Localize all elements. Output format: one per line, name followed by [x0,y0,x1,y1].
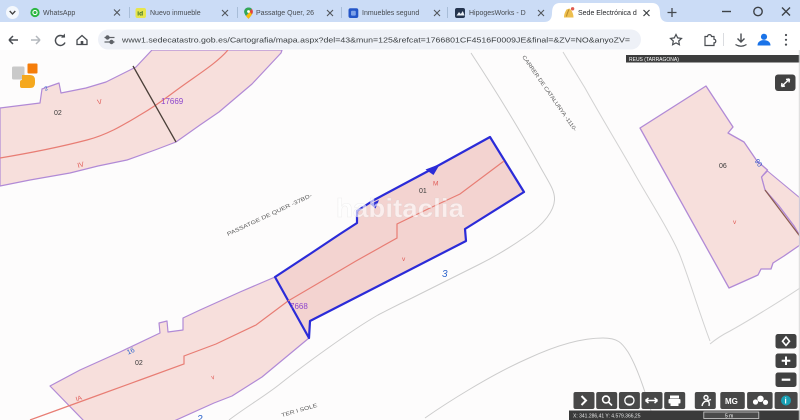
svg-text:7668: 7668 [290,302,308,311]
svg-text:Nuevo inmueble: Nuevo inmueble [150,10,201,17]
svg-text:06: 06 [719,163,727,170]
svg-text:i: i [785,397,787,406]
svg-text:3: 3 [442,269,448,280]
svg-text:2: 2 [196,414,203,420]
svg-text:id: id [137,11,143,18]
svg-text:Passatge Quer, 26: Passatge Quer, 26 [256,10,314,17]
svg-text:M: M [433,181,438,188]
svg-text:WhatsApp: WhatsApp [43,10,75,17]
svg-text:X: 341.286,41 Y: 4.579.366,25: X: 341.286,41 Y: 4.579.366,25 [573,413,641,419]
svg-text:HipogesWorks - D: HipogesWorks - D [469,10,526,17]
svg-text:02: 02 [135,360,143,367]
svg-text:REUS (TARRAGONA): REUS (TARRAGONA) [629,57,679,63]
svg-text:Sede Electrónica d: Sede Electrónica d [578,10,637,17]
svg-text:www1.sedecatastro.gob.es/Carto: www1.sedecatastro.gob.es/Cartografia/map… [121,35,631,44]
svg-text:5 m: 5 m [725,413,733,419]
svg-text:habitaclia: habitaclia [336,193,465,223]
svg-text:Inmuebles segund: Inmuebles segund [362,10,419,17]
svg-text:17669: 17669 [161,97,184,106]
svg-text:02: 02 [54,110,62,117]
svg-text:MG: MG [725,397,738,406]
